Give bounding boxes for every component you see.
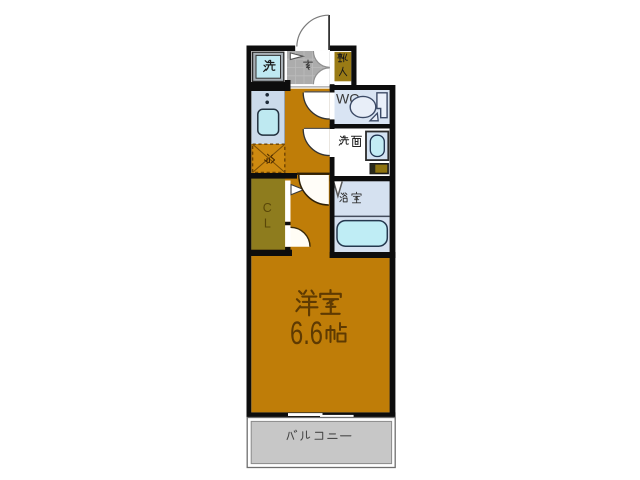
svg-text:C: C [263,201,272,215]
svg-text:L: L [264,217,271,231]
svg-text:6.6: 6.6 [290,315,323,351]
